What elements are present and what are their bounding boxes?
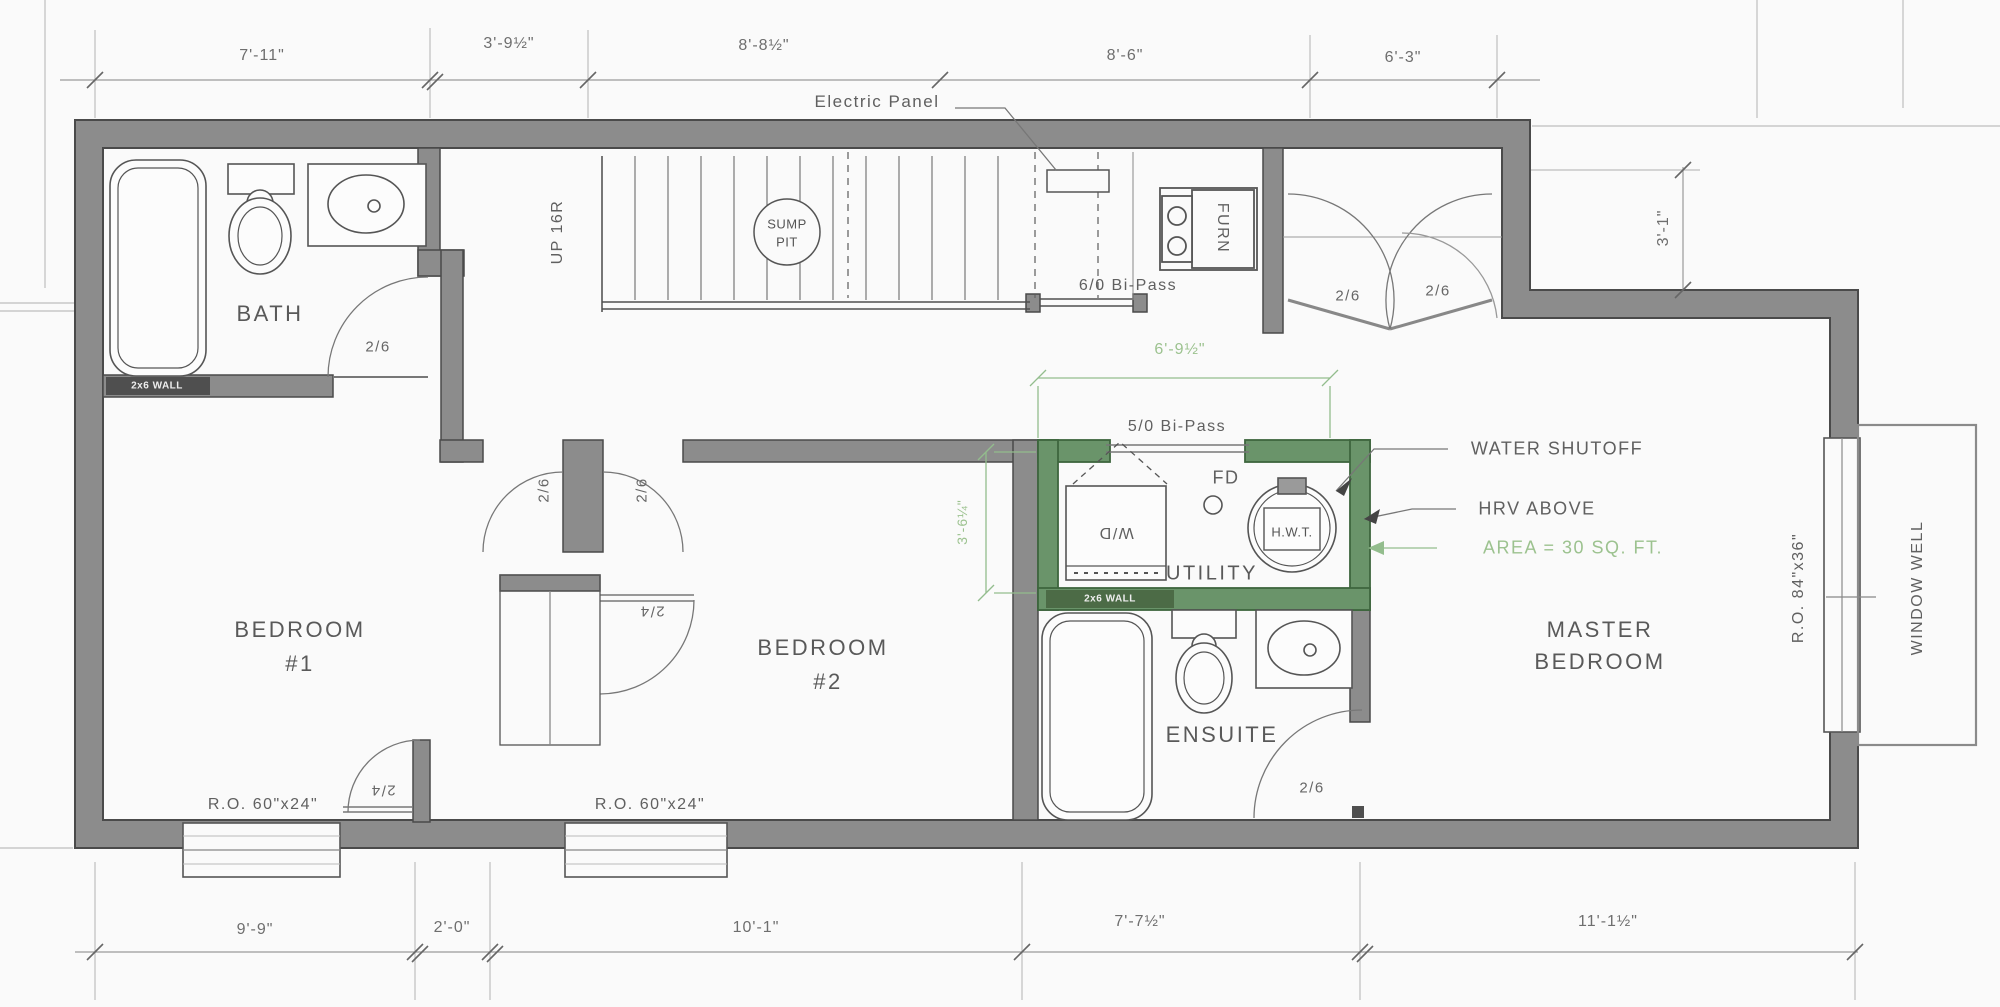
area-note-label: AREA = 30 SQ. FT.	[1483, 538, 1663, 559]
dim-bottom-2: 2'-0"	[434, 919, 471, 937]
dim-top-4: 8'-6"	[1107, 47, 1144, 65]
ro-window-master: R.O. 84"x36"	[1790, 533, 1808, 643]
door-label-master-closet-left: 2/6	[1335, 288, 1360, 305]
dimension-line-right	[1675, 162, 1691, 298]
door-label-bedroom1-entry: 2/6	[536, 477, 553, 502]
floor-plan-canvas: 7'-11" 3'-9½" 8'-8½" 8'-6" 6'-3" 9'-9" 2…	[0, 0, 2000, 1007]
dim-utility-height: 3'-6¼"	[954, 499, 970, 545]
bipass-60-label: 6/0 Bi-Pass	[1079, 277, 1177, 295]
dim-top-3: 8'-8½"	[738, 37, 789, 55]
hot-water-tank-label: H.W.T.	[1271, 525, 1312, 540]
room-label-bedroom2-line1: BEDROOM	[757, 635, 888, 661]
closet-millwork	[500, 575, 600, 745]
sump-pit-label-2: PIT	[776, 235, 798, 250]
dim-top-5: 6'-3"	[1385, 49, 1422, 67]
dim-top-2: 3'-9½"	[483, 35, 534, 53]
water-shutoff-label: WATER SHUTOFF	[1471, 439, 1643, 460]
window-well-label: WINDOW WELL	[1909, 521, 1927, 656]
dim-bottom-4: 7'-7½"	[1114, 913, 1165, 931]
furnace-label: FURN	[1213, 203, 1231, 253]
door-label-master-closet-right: 2/6	[1425, 283, 1450, 300]
ro-window-bedroom2: R.O. 60"x24"	[595, 796, 705, 814]
dimension-lines-top	[60, 72, 1540, 90]
room-label-utility: UTILITY	[1166, 563, 1258, 586]
floorplan-drawing	[0, 0, 2000, 1007]
door-label-bedroom1-closet: 2/4	[370, 782, 395, 799]
door-label-bedroom2-entry: 2/6	[634, 477, 651, 502]
bipass-50-label: 5/0 Bi-Pass	[1128, 418, 1226, 436]
master-closet-doors	[1283, 194, 1502, 329]
room-label-bedroom1-line2: #1	[285, 651, 314, 677]
door-label-closet-24: 2/4	[639, 603, 664, 620]
room-label-master-line1: MASTER	[1547, 617, 1654, 643]
hrv-above-label: HRV ABOVE	[1478, 499, 1595, 520]
floor-drain-label: FD	[1213, 468, 1240, 489]
room-label-master-line2: BEDROOM	[1534, 649, 1665, 675]
bipass-50-door	[1106, 445, 1249, 452]
dim-utility-width: 6'-9½"	[1154, 341, 1205, 359]
room-label-bedroom2-line2: #2	[813, 669, 842, 695]
furnace-symbol	[1160, 188, 1257, 270]
dim-bottom-1: 9'-9"	[237, 921, 274, 939]
washer-dryer-label: W/D	[1098, 523, 1134, 541]
up-stairs-label: UP 16R	[549, 200, 567, 265]
door-label-bath: 2/6	[365, 339, 390, 356]
door-label-ensuite: 2/6	[1299, 780, 1324, 797]
wall-2x6-label-bath: 2x6 WALL	[131, 381, 183, 392]
dim-bottom-5: 11'-1½"	[1578, 913, 1638, 931]
sump-pit-label-1: SUMP	[767, 217, 807, 232]
room-label-bedroom1-line1: BEDROOM	[234, 617, 365, 643]
dimension-lines-bottom	[75, 944, 1863, 962]
sump-pit-symbol	[754, 199, 820, 265]
dim-top-1: 7'-11"	[239, 47, 285, 65]
room-label-ensuite: ENSUITE	[1166, 722, 1279, 748]
wall-2x6-label-utility: 2x6 WALL	[1084, 594, 1136, 605]
dim-bottom-3: 10'-1"	[733, 919, 780, 937]
electric-panel-label: Electric Panel	[815, 92, 940, 112]
room-label-bath: BATH	[236, 301, 303, 327]
dim-right-step: 3'-1"	[1655, 210, 1673, 247]
ro-window-bedroom1: R.O. 60"x24"	[208, 796, 318, 814]
